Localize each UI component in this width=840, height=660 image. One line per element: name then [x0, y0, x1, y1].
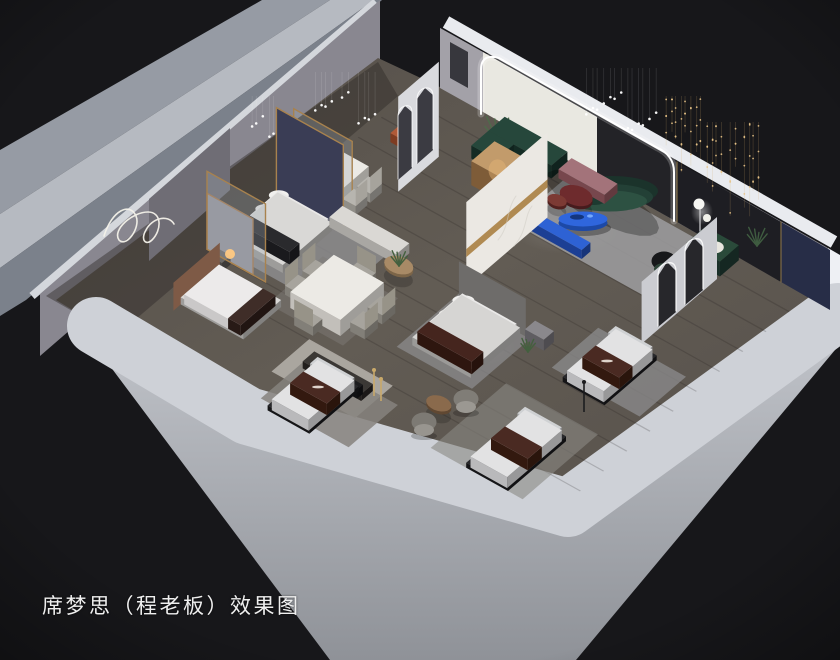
render-stage: 席梦思（程老板）效果图	[0, 0, 840, 660]
caption-text: 席梦思（程老板）效果图	[42, 590, 301, 620]
showroom-render-svg	[0, 0, 840, 660]
vignette	[0, 0, 840, 660]
